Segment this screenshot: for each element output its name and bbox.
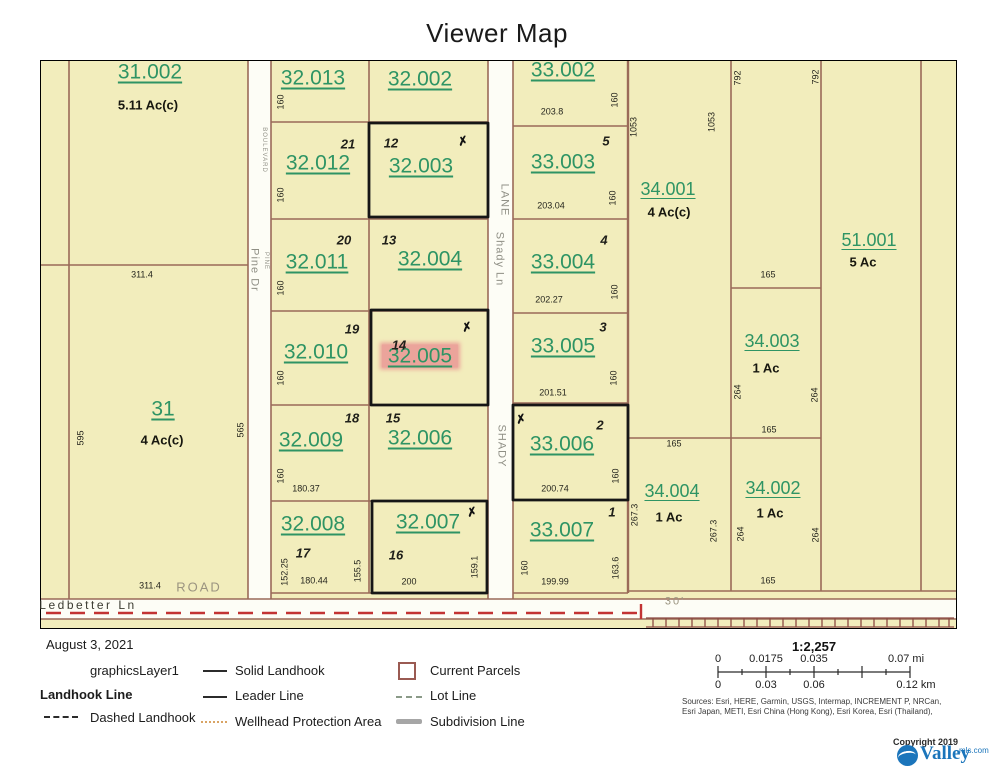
current-parcels-symbol xyxy=(398,662,416,680)
scale-km-0: 0 xyxy=(715,679,721,691)
scale-mi-0: 0 xyxy=(715,653,721,665)
solid-landhook-symbol xyxy=(203,670,227,672)
scalebar-ruler xyxy=(713,665,923,679)
legend-item-solid-landhook: Solid Landhook xyxy=(235,663,325,678)
legend-item-dashed-landhook: Dashed Landhook xyxy=(90,710,196,725)
wellhead-protection-symbol xyxy=(201,721,227,723)
sources-line-1: Sources: Esri, HERE, Garmin, USGS, Inter… xyxy=(682,697,941,707)
valleymls-logo-suffix: mls.com xyxy=(959,746,989,755)
leader-line-symbol xyxy=(203,696,227,698)
legend-item-leader-line: Leader Line xyxy=(235,688,304,703)
valleymls-globe-icon xyxy=(897,745,918,766)
sources-line-2: Esri Japan, METI, Esri China (Hong Kong)… xyxy=(682,707,941,717)
scale-km-1: 0.03 xyxy=(755,679,776,691)
scale-mi-2: 0.035 xyxy=(800,653,828,665)
legend-group-landhook-line: Landhook Line xyxy=(40,687,132,702)
scale-km-2: 0.06 xyxy=(803,679,824,691)
map-canvas[interactable] xyxy=(40,60,957,629)
scale-km-3: 0.12 km xyxy=(896,679,935,691)
dashed-landhook-symbol xyxy=(44,716,78,718)
viewer-map-page: Viewer Map xyxy=(0,0,994,768)
map-date: August 3, 2021 xyxy=(46,637,133,652)
map-linework xyxy=(41,61,956,628)
scale-mi-1: 0.0175 xyxy=(749,653,783,665)
legend-item-lot-line: Lot Line xyxy=(430,688,476,703)
subdivision-line-symbol xyxy=(396,719,422,724)
legend-item-current-parcels: Current Parcels xyxy=(430,663,520,678)
scale-ratio: 1:2,257 xyxy=(792,639,836,654)
scale-mi-3: 0.07 mi xyxy=(888,653,924,665)
legend-item-wellhead: Wellhead Protection Area xyxy=(235,714,381,729)
page-title: Viewer Map xyxy=(0,18,994,49)
sources-text: Sources: Esri, HERE, Garmin, USGS, Inter… xyxy=(682,697,941,717)
legend-layer-name: graphicsLayer1 xyxy=(90,663,179,678)
legend-item-subdivision-line: Subdivision Line xyxy=(430,714,525,729)
lot-line-symbol xyxy=(396,696,422,698)
